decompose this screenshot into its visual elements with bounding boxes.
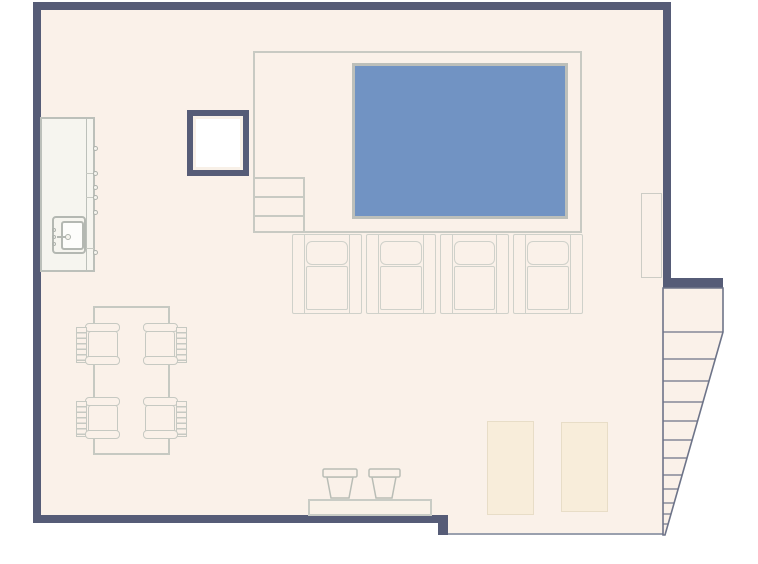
platform-step — [255, 217, 303, 234]
dining-chair — [76, 323, 121, 365]
cabinet-knob — [93, 210, 98, 215]
wall-bottom-step — [438, 515, 448, 535]
faucet-dot — [52, 235, 56, 239]
bar-stools — [320, 468, 408, 501]
cabinet-knob — [93, 146, 98, 151]
seat-headrest — [527, 241, 569, 265]
bar-bench — [308, 499, 432, 516]
stool-legs — [372, 477, 396, 498]
wall-cabinet — [641, 193, 662, 278]
cabinet-knob — [93, 195, 98, 200]
seat-armrest — [367, 235, 379, 313]
stool-seat — [369, 469, 400, 477]
seat-armrest — [441, 235, 453, 313]
chair-seat — [88, 405, 118, 433]
chair-armrest — [85, 430, 120, 439]
seat-cushion — [306, 266, 348, 310]
seat-armrest — [514, 235, 526, 313]
wall-top — [33, 2, 671, 10]
chair-armrest — [143, 356, 178, 365]
faucet-handle — [65, 234, 71, 240]
column-shaft — [187, 110, 249, 176]
cabinet-knob — [93, 250, 98, 255]
seat-armrest — [496, 235, 508, 313]
recliner-seat — [440, 234, 510, 314]
staircase — [661, 286, 725, 537]
seat-cushion — [380, 266, 422, 310]
seat-armrest — [570, 235, 582, 313]
dining-chair — [76, 397, 121, 439]
dining-chair — [142, 323, 187, 365]
cabinet-knob — [93, 171, 98, 176]
seat-cushion — [527, 266, 569, 310]
pool — [352, 63, 568, 219]
recliner-seat-row — [292, 234, 583, 314]
column-shaft-inner — [193, 116, 243, 170]
cabinet-knob — [93, 185, 98, 190]
wall-bottom — [33, 515, 438, 523]
seat-armrest — [349, 235, 361, 313]
platform-step — [255, 198, 303, 217]
lower-right-floor-extension — [448, 515, 663, 535]
wall-right-upper — [663, 2, 671, 288]
stool-seat — [323, 469, 357, 477]
chair-armrest — [85, 356, 120, 365]
seat-cushion — [454, 266, 496, 310]
chair-seat — [145, 405, 175, 433]
floor-mat — [561, 422, 608, 512]
seat-headrest — [306, 241, 348, 265]
recliner-seat — [366, 234, 436, 314]
chair-armrest — [143, 430, 178, 439]
dining-chair — [142, 397, 187, 439]
counter-segment-line — [86, 248, 94, 249]
seat-headrest — [380, 241, 422, 265]
faucet-dot — [52, 242, 56, 246]
faucet-dot — [52, 228, 56, 232]
staircase-outline — [663, 288, 723, 535]
seat-headrest — [454, 241, 496, 265]
platform-step — [255, 179, 303, 198]
seat-armrest — [423, 235, 435, 313]
stool-legs — [327, 477, 353, 498]
chair-seat — [145, 331, 175, 359]
recliner-seat — [292, 234, 362, 314]
floor-mat — [487, 421, 534, 515]
recliner-seat — [513, 234, 583, 314]
seat-armrest — [293, 235, 305, 313]
column-shaft-core — [196, 119, 240, 167]
platform-access-steps — [253, 177, 305, 233]
chair-seat — [88, 331, 118, 359]
floor-plan-canvas — [0, 0, 758, 564]
